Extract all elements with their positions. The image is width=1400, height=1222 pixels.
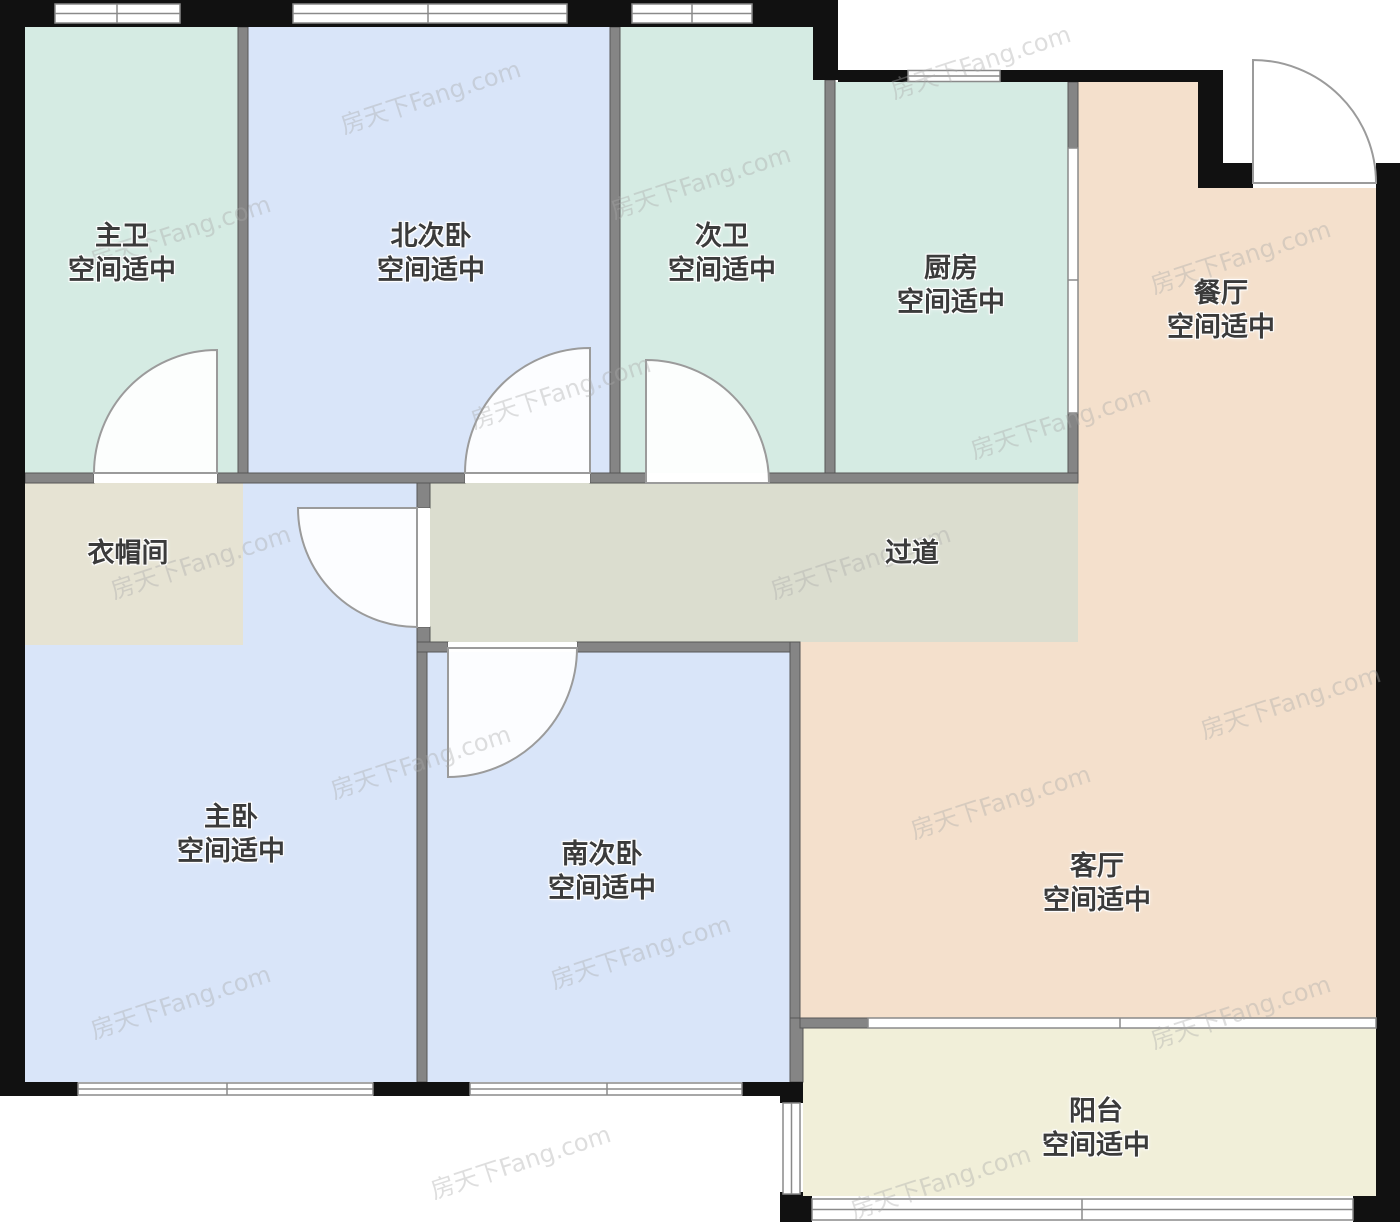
window-south-bedroom-south [470, 1083, 742, 1095]
room-label-cloakroom: 衣帽间 [88, 537, 169, 571]
wall-living-balcony-stub [800, 1018, 868, 1028]
room-label-hallway: 过道 [885, 537, 939, 571]
room-note: 空间适中 [668, 254, 776, 288]
wall-hall-bottom-1 [417, 642, 448, 652]
window-master-bedroom-south [78, 1083, 373, 1095]
room-name: 衣帽间 [88, 537, 169, 571]
room-note: 空间适中 [548, 872, 656, 906]
window-living-balcony [868, 1018, 1376, 1028]
wall-bottom-1 [0, 1082, 78, 1096]
wall-bottom-2 [373, 1082, 470, 1096]
window-kitchen [908, 71, 1000, 82]
wall-masterbath-northbedroom [238, 27, 248, 473]
window-balcony-left [783, 1103, 800, 1194]
door-opening-master-bedroom [417, 508, 430, 627]
room-floor-hallway [430, 483, 1078, 642]
wall-balcony-bottom-left [790, 1196, 812, 1222]
room-note: 空间适中 [1043, 884, 1151, 918]
room-name: 阳台 [1069, 1095, 1123, 1129]
wall-secondbath-kitchen [825, 80, 835, 473]
room-name: 主卫 [95, 220, 149, 254]
window-balcony-bottom [812, 1199, 1353, 1220]
window-master-bath [55, 4, 180, 23]
room-note: 空间适中 [177, 835, 285, 869]
room-label-balcony: 阳台 空间适中 [1042, 1095, 1150, 1163]
room-note: 空间适中 [68, 254, 176, 288]
wall-hall-bottom-2 [577, 642, 800, 652]
floor-plan: 主卫 空间适中 北次卧 空间适中 次卫 空间适中 厨房 空间适中 餐厅 空间适中… [0, 0, 1400, 1222]
room-note: 空间适中 [1042, 1129, 1150, 1163]
room-label-living-room: 客厅 空间适中 [1043, 850, 1151, 918]
room-name: 客厅 [1070, 850, 1124, 884]
room-note: 空间适中 [377, 254, 485, 288]
room-label-kitchen: 厨房 空间适中 [897, 252, 1005, 320]
room-note: 空间适中 [1167, 311, 1275, 345]
room-name: 过道 [885, 537, 939, 571]
door-opening-master-bath [94, 473, 217, 483]
floor-plan-drawing [0, 0, 1400, 1222]
wall-masterdoor-lower [417, 627, 430, 642]
room-name: 厨房 [924, 252, 978, 286]
window-second-bath [632, 4, 752, 23]
wall-entry-stub [1223, 163, 1253, 188]
room-label-north-bedroom: 北次卧 空间适中 [377, 220, 485, 288]
room-floor-dining [1078, 188, 1380, 642]
room-name: 南次卧 [562, 838, 643, 872]
wall-masterbedroom-southbedroom [417, 652, 427, 1082]
room-label-dining-room: 餐厅 空间适中 [1167, 277, 1275, 345]
wall-left [0, 0, 25, 1096]
room-name: 次卫 [695, 220, 749, 254]
room-label-south-bedroom: 南次卧 空间适中 [548, 838, 656, 906]
room-label-master-bath: 主卫 空间适中 [68, 220, 176, 288]
wall-balcony-corner-1 [780, 1082, 803, 1103]
wall-hall-top-1 [25, 473, 94, 483]
room-note: 空间适中 [897, 286, 1005, 320]
sliding-door-kitchen [1068, 148, 1078, 413]
room-label-second-bath: 次卫 空间适中 [668, 220, 776, 288]
wall-kitchen-top-1 [838, 70, 908, 82]
room-name: 北次卧 [391, 220, 472, 254]
door-entrance [1253, 60, 1376, 183]
wall-southbedroom-living [790, 642, 800, 1082]
wall-entry-vertical [1198, 70, 1223, 188]
room-label-master-bedroom: 主卧 空间适中 [177, 801, 285, 869]
wall-kitchen-top-2 [1000, 70, 1198, 82]
room-name: 主卧 [204, 801, 258, 835]
wall-right [1376, 163, 1400, 1222]
room-name: 餐厅 [1194, 277, 1248, 311]
wall-step-vertical [813, 0, 838, 80]
wall-hall-top-4 [769, 473, 1078, 483]
door-opening-north-bedroom [465, 473, 590, 483]
wall-masterdoor-upper [417, 483, 430, 508]
wall-kitchen-dining-upper [1068, 82, 1078, 148]
wall-kitchen-dining-lower [1068, 413, 1078, 473]
room-floor-living-room [800, 642, 1380, 1018]
wall-balcony-bottom-right [1353, 1196, 1400, 1222]
wall-hall-top-3 [590, 473, 646, 483]
window-north-bedroom [293, 4, 567, 23]
wall-hall-top-2 [217, 473, 465, 483]
wall-northbedroom-secondbath [610, 27, 620, 473]
